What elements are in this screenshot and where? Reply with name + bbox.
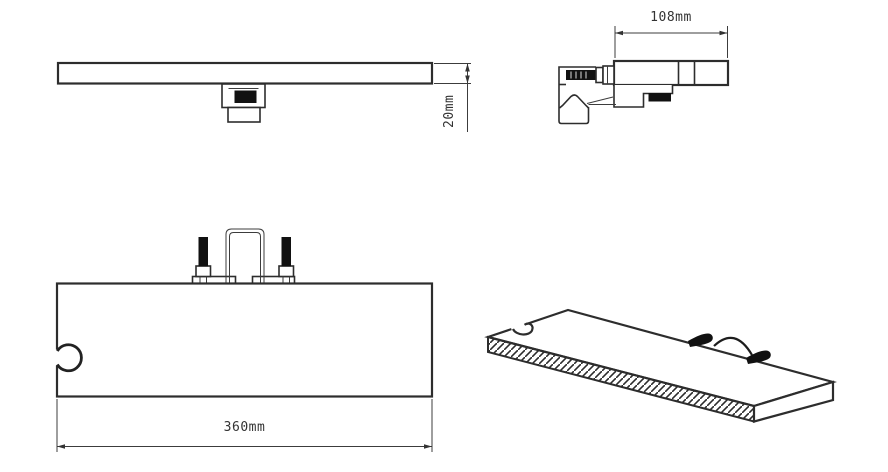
- bracket-lower-block: [228, 108, 260, 123]
- end-profile-view: 108mm: [559, 10, 728, 124]
- arrowhead-right: [720, 31, 728, 36]
- clamp-body: [614, 61, 728, 85]
- arrowhead-down: [465, 76, 470, 84]
- technical-drawing-page: 20mm 108mm: [0, 0, 888, 472]
- right-screw-shaft: [282, 237, 292, 267]
- isometric-view: [488, 310, 833, 422]
- dimension-label-20mm: 20mm: [442, 95, 457, 128]
- arrowhead-up: [465, 64, 470, 72]
- arrowhead-left: [57, 444, 65, 449]
- dimension-108mm: 108mm: [615, 10, 728, 58]
- u-bracket-outer: [226, 229, 264, 284]
- dimension-360mm: 360mm: [57, 399, 432, 452]
- dimension-label-108mm: 108mm: [650, 10, 692, 25]
- mounting-bracket: [193, 229, 295, 284]
- right-screw-collar: [279, 266, 294, 277]
- clamp-pad: [649, 93, 672, 102]
- front-view: 360mm: [54, 229, 432, 452]
- screw-washer: [596, 68, 603, 83]
- keyhole-notch: [57, 345, 81, 371]
- arrowhead-left: [615, 31, 623, 36]
- dimension-label-360mm: 360mm: [224, 420, 266, 435]
- bar-profile: [58, 63, 432, 84]
- shelf-panel: [57, 284, 432, 397]
- adjusting-screw: [566, 66, 614, 84]
- technical-drawing-canvas: 20mm 108mm: [0, 0, 888, 472]
- dimension-20mm: 20mm: [434, 64, 471, 133]
- side-elevation-view: 20mm: [58, 63, 471, 132]
- hook-saddle: [560, 95, 589, 108]
- screw-nut: [603, 66, 614, 84]
- bracket-pad: [235, 91, 257, 104]
- left-screw-shaft: [199, 237, 209, 267]
- iso-screw-1: [688, 334, 713, 348]
- arrowhead-right: [424, 444, 432, 449]
- left-screw-collar: [196, 266, 211, 277]
